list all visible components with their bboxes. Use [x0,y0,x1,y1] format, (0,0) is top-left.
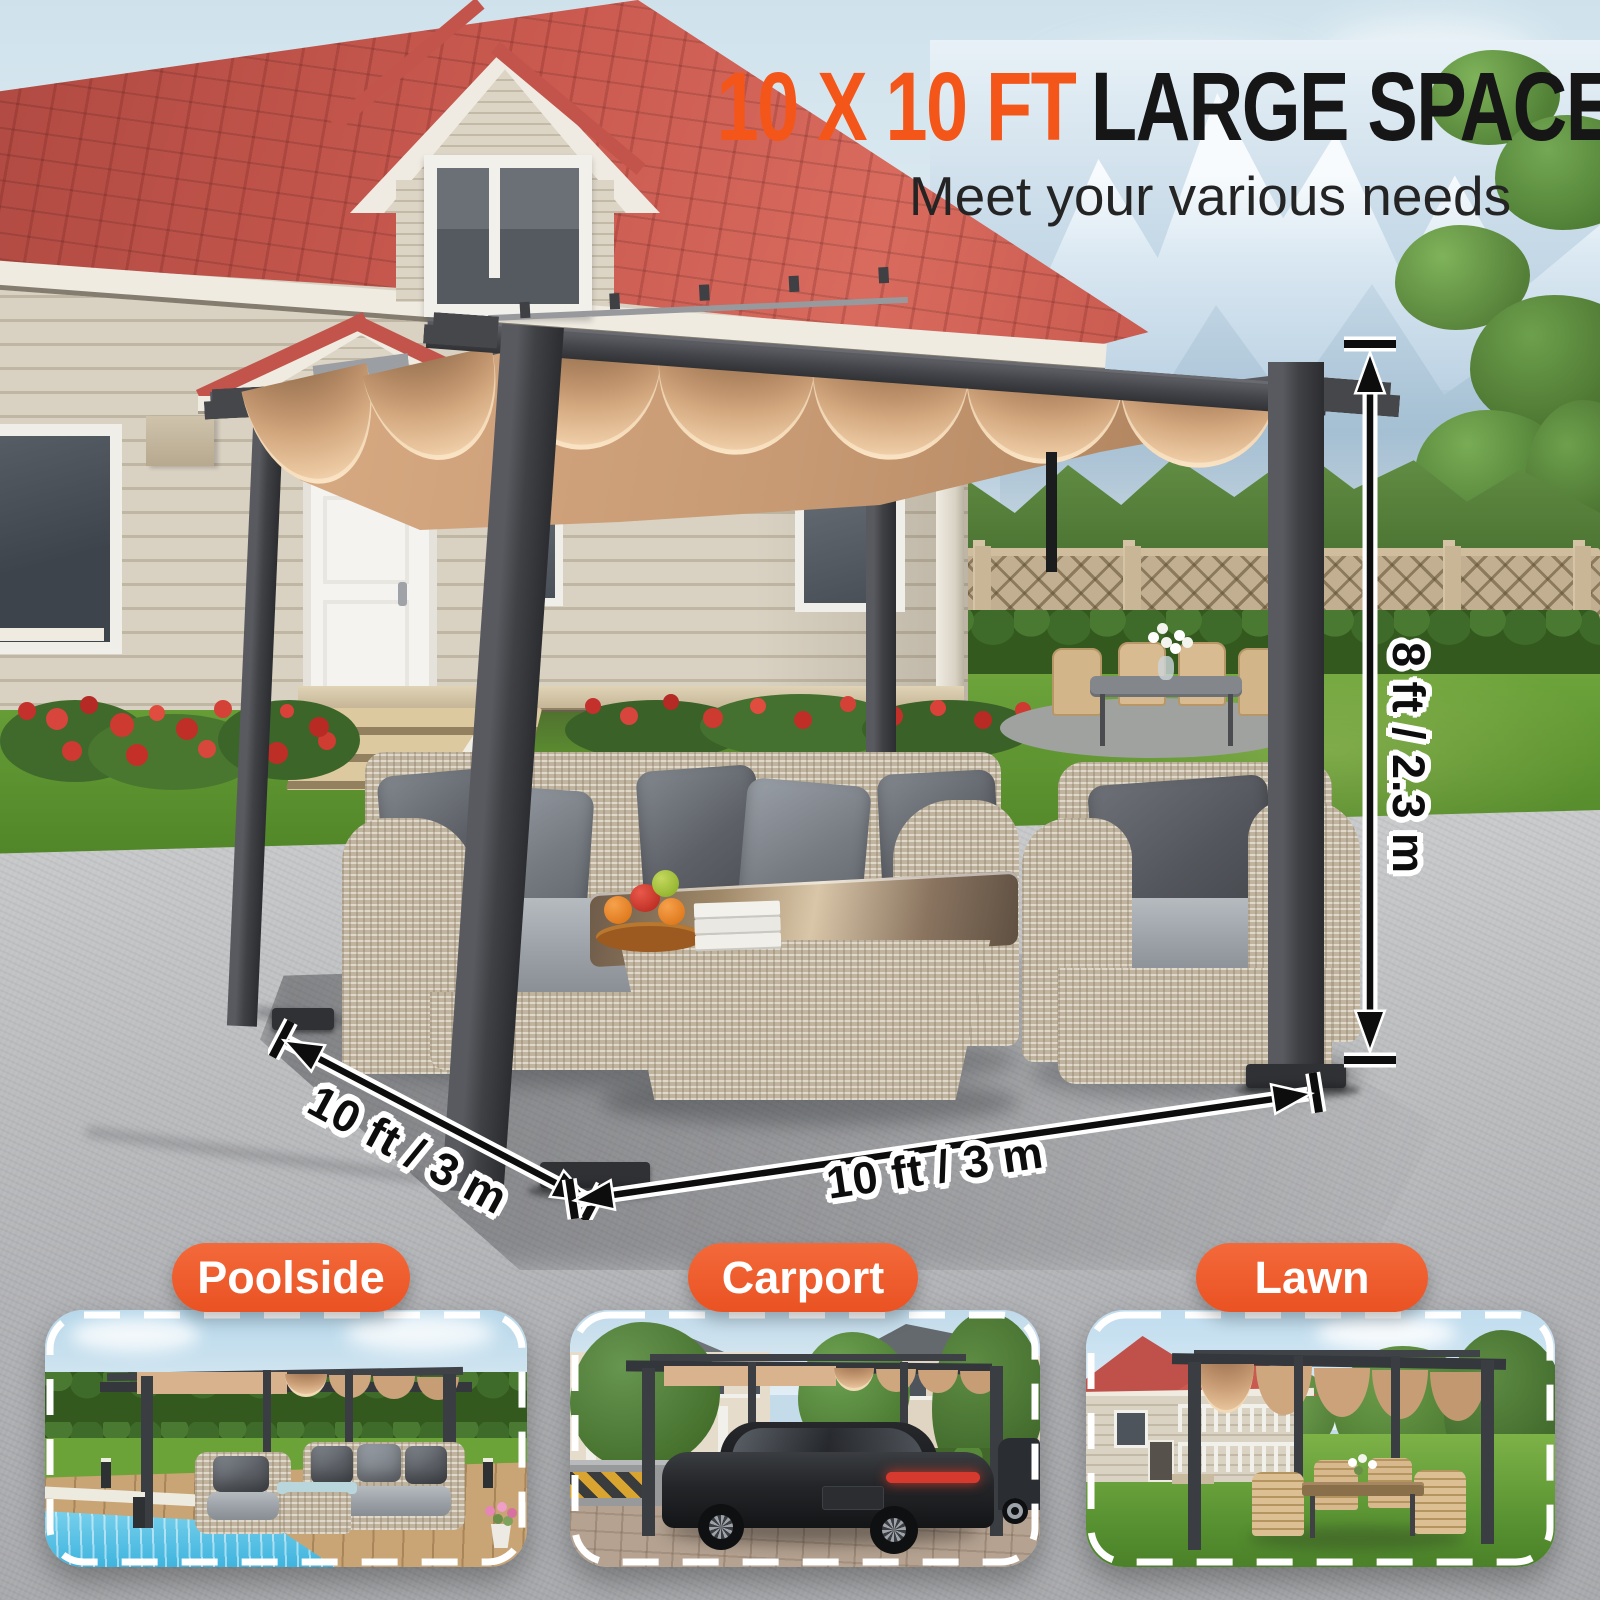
fruit-orange [658,898,685,925]
dormer-window [424,155,592,317]
dormer-window-mullion [489,168,500,278]
thumb-dashed-border [570,1310,1040,1567]
product-hero-image: 8 ft / 2.3 m 10 ft / 3 m 10 ft / 3 m 10 … [0,0,1600,1600]
pill-text: Carport [722,1252,885,1304]
use-case-label-lawn: Lawn [1196,1243,1428,1312]
flowerbed-roses [585,698,601,714]
fruit-orange [604,896,632,924]
height-dimension-label: 8 ft / 2.3 m [1383,548,1433,968]
flowerbed-roses [18,702,36,720]
pill-text: Poolside [197,1252,385,1304]
thumb-dashed-border [1086,1310,1555,1567]
pill-text: Lawn [1254,1252,1369,1304]
door-handle [398,582,407,606]
porch-column [936,458,964,710]
left-window [0,424,122,654]
use-case-thumb-lawn [1086,1310,1555,1567]
pergola-post-front-right [1268,362,1324,1086]
use-case-thumb-carport [570,1310,1040,1567]
left-window-sill [0,628,104,641]
headline: 10 X 10 FTLARGE SPACE [590,54,1560,161]
fruit-plate [596,922,704,952]
dining-table-leg [1228,694,1233,746]
use-case-label-poolside: Poolside [172,1243,410,1312]
headline-size-text: 10 X 10 FT [717,52,1076,161]
entry-side-box [146,416,214,466]
vase [1158,656,1174,680]
dining-table-leg [1100,694,1105,746]
books-stack [694,901,780,918]
headline-subtitle: Meet your various needs [880,166,1540,227]
door-panel [323,600,409,694]
thumb-dashed-border [45,1310,527,1567]
pergola-front-corbel-left [423,311,499,348]
dining-chair [1178,642,1226,706]
canopy-pull-strap [1046,452,1057,572]
fruit-apple-green [652,870,679,897]
use-case-label-carport: Carport [688,1243,918,1312]
headline-main-text: LARGE SPACE [1091,52,1600,161]
canopy-hook [520,302,531,319]
use-case-thumb-poolside [45,1310,527,1567]
vase-flowers [1148,632,1159,643]
